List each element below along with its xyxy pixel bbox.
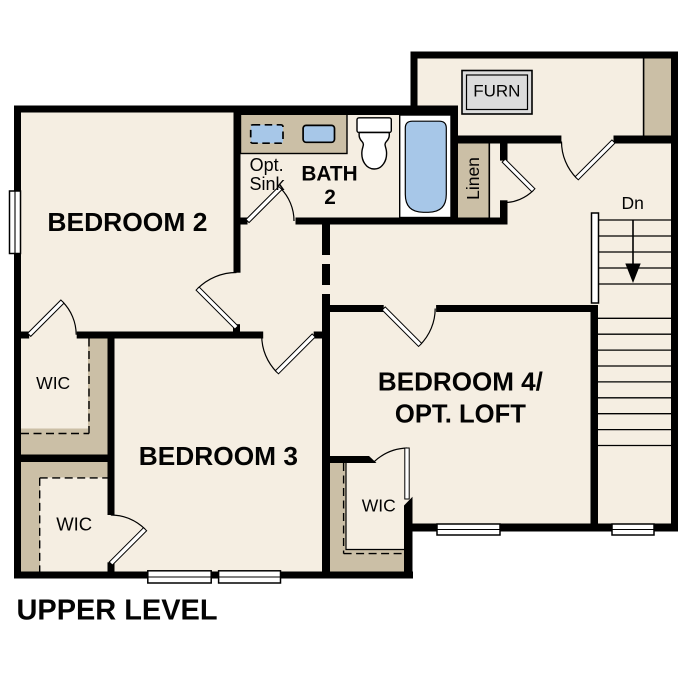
svg-text:BEDROOM 3: BEDROOM 3 bbox=[139, 441, 298, 471]
svg-text:WIC: WIC bbox=[36, 373, 70, 393]
svg-text:Dn: Dn bbox=[622, 193, 644, 213]
svg-text:BEDROOM 2: BEDROOM 2 bbox=[47, 207, 207, 237]
svg-text:FURN: FURN bbox=[473, 82, 520, 101]
svg-text:BEDROOM 4/: BEDROOM 4/ bbox=[378, 367, 543, 397]
svg-text:Linen: Linen bbox=[463, 157, 483, 200]
svg-text:Opt.: Opt. bbox=[250, 155, 284, 175]
svg-text:WIC: WIC bbox=[362, 495, 396, 515]
svg-text:BATH: BATH bbox=[301, 162, 357, 185]
svg-text:OPT. LOFT: OPT. LOFT bbox=[395, 398, 526, 428]
svg-text:WIC: WIC bbox=[56, 514, 92, 535]
svg-text:UPPER LEVEL: UPPER LEVEL bbox=[17, 594, 218, 626]
svg-text:2: 2 bbox=[324, 186, 336, 209]
svg-text:Sink: Sink bbox=[249, 174, 285, 194]
